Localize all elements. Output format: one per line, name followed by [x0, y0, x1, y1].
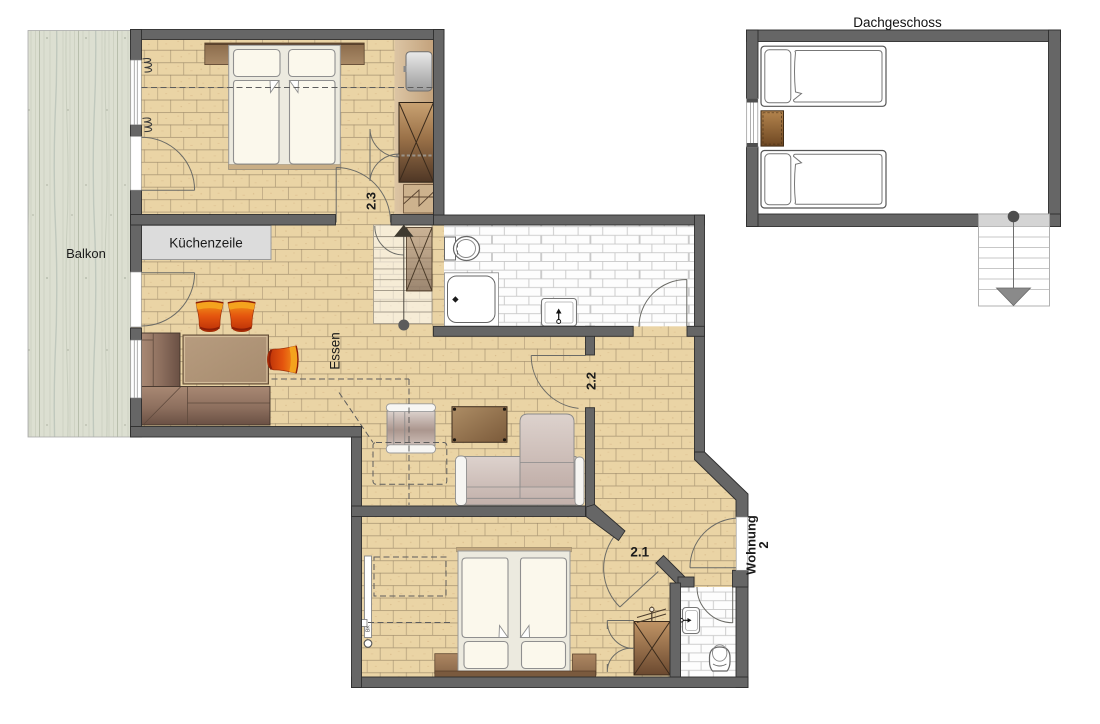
svg-text:2.3: 2.3: [364, 192, 379, 210]
svg-text:2: 2: [756, 541, 771, 548]
svg-text:2.2: 2.2: [584, 372, 599, 390]
svg-text:Küchenzeile: Küchenzeile: [169, 236, 243, 251]
svg-text:Dachgeschoss: Dachgeschoss: [853, 15, 942, 30]
svg-text:Essen: Essen: [328, 332, 343, 370]
svg-text:Balkon: Balkon: [66, 246, 106, 261]
svg-text:2.1: 2.1: [630, 545, 649, 560]
